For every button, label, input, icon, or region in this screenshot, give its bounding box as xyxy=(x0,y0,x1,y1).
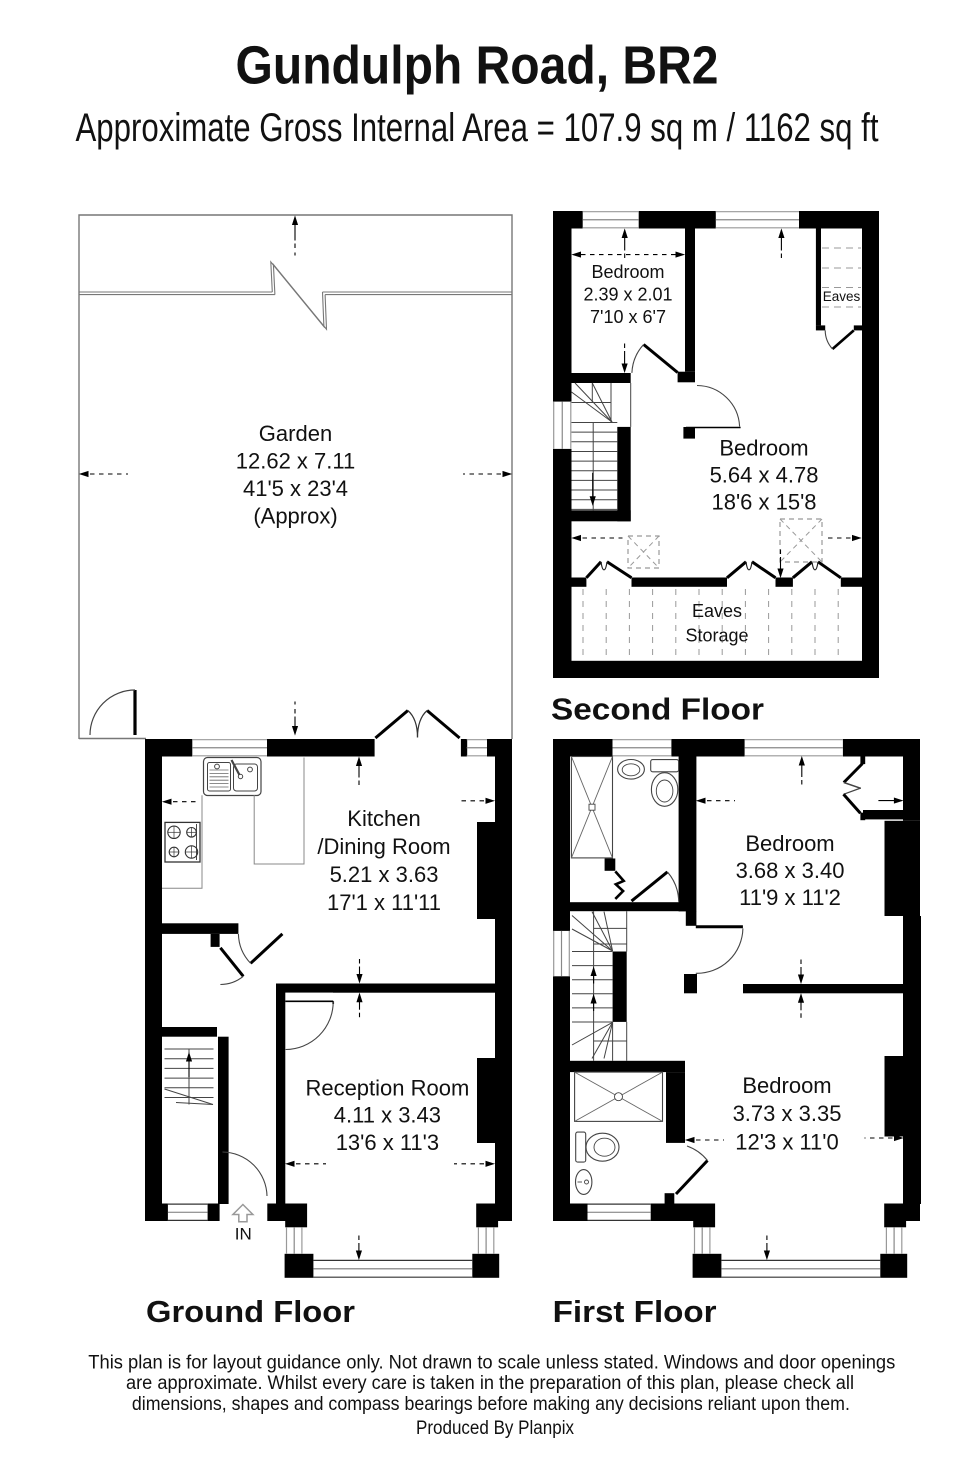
svg-text:Ground Floor: Ground Floor xyxy=(146,1294,355,1329)
svg-text:Bedroom: Bedroom xyxy=(742,1073,831,1098)
svg-text:4.11 x 3.43: 4.11 x 3.43 xyxy=(334,1103,441,1128)
svg-text:11'9 x 11'2: 11'9 x 11'2 xyxy=(739,885,841,910)
svg-text:dimensions, shapes and compass: dimensions, shapes and compass bearings … xyxy=(132,1394,850,1415)
svg-text:Bedroom: Bedroom xyxy=(719,436,808,461)
svg-text:First Floor: First Floor xyxy=(553,1294,717,1329)
svg-text:2.39 x 2.01: 2.39 x 2.01 xyxy=(583,285,672,305)
svg-text:41'5 x 23'4: 41'5 x 23'4 xyxy=(243,476,348,501)
svg-text:7'10 x 6'7: 7'10 x 6'7 xyxy=(590,307,666,327)
svg-text:3.68 x 3.40: 3.68 x 3.40 xyxy=(736,858,845,883)
svg-text:18'6 x 15'8: 18'6 x 15'8 xyxy=(711,490,816,515)
svg-text:IN: IN xyxy=(235,1225,252,1244)
svg-text:Approximate Gross Internal Are: Approximate Gross Internal Area = 107.9 … xyxy=(76,106,879,150)
svg-text:Kitchen: Kitchen xyxy=(347,806,420,831)
svg-text:Storage: Storage xyxy=(685,626,748,646)
svg-text:Reception Room: Reception Room xyxy=(305,1075,469,1100)
svg-text:12.62 x 7.11: 12.62 x 7.11 xyxy=(236,449,355,474)
svg-text:are approximate. Whilst every: are approximate. Whilst every care is ta… xyxy=(126,1373,854,1394)
svg-text:Bedroom: Bedroom xyxy=(591,262,664,282)
svg-text:5.64 x 4.78: 5.64 x 4.78 xyxy=(710,463,819,488)
svg-text:Second Floor: Second Floor xyxy=(551,692,764,727)
svg-text:5.21 x 3.63: 5.21 x 3.63 xyxy=(330,862,439,887)
svg-text:17'1 x 11'11: 17'1 x 11'11 xyxy=(327,890,441,915)
svg-text:13'6 x 11'3: 13'6 x 11'3 xyxy=(336,1130,439,1155)
svg-text:12'3 x 11'0: 12'3 x 11'0 xyxy=(735,1130,838,1155)
svg-text:Garden: Garden xyxy=(259,421,332,446)
svg-text:This plan is for layout guidan: This plan is for layout guidance only. N… xyxy=(88,1352,895,1373)
svg-text:Produced By Planpix: Produced By Planpix xyxy=(416,1418,574,1439)
svg-text:Bedroom: Bedroom xyxy=(745,831,834,856)
svg-text:Gundulph Road, BR2: Gundulph Road, BR2 xyxy=(236,37,719,96)
svg-text:(Approx): (Approx) xyxy=(253,504,337,529)
svg-text:3.73 x 3.35: 3.73 x 3.35 xyxy=(733,1101,842,1126)
svg-text:Eaves: Eaves xyxy=(692,601,742,621)
svg-text:/Dining Room: /Dining Room xyxy=(317,834,450,859)
svg-text:Eaves: Eaves xyxy=(823,289,861,304)
